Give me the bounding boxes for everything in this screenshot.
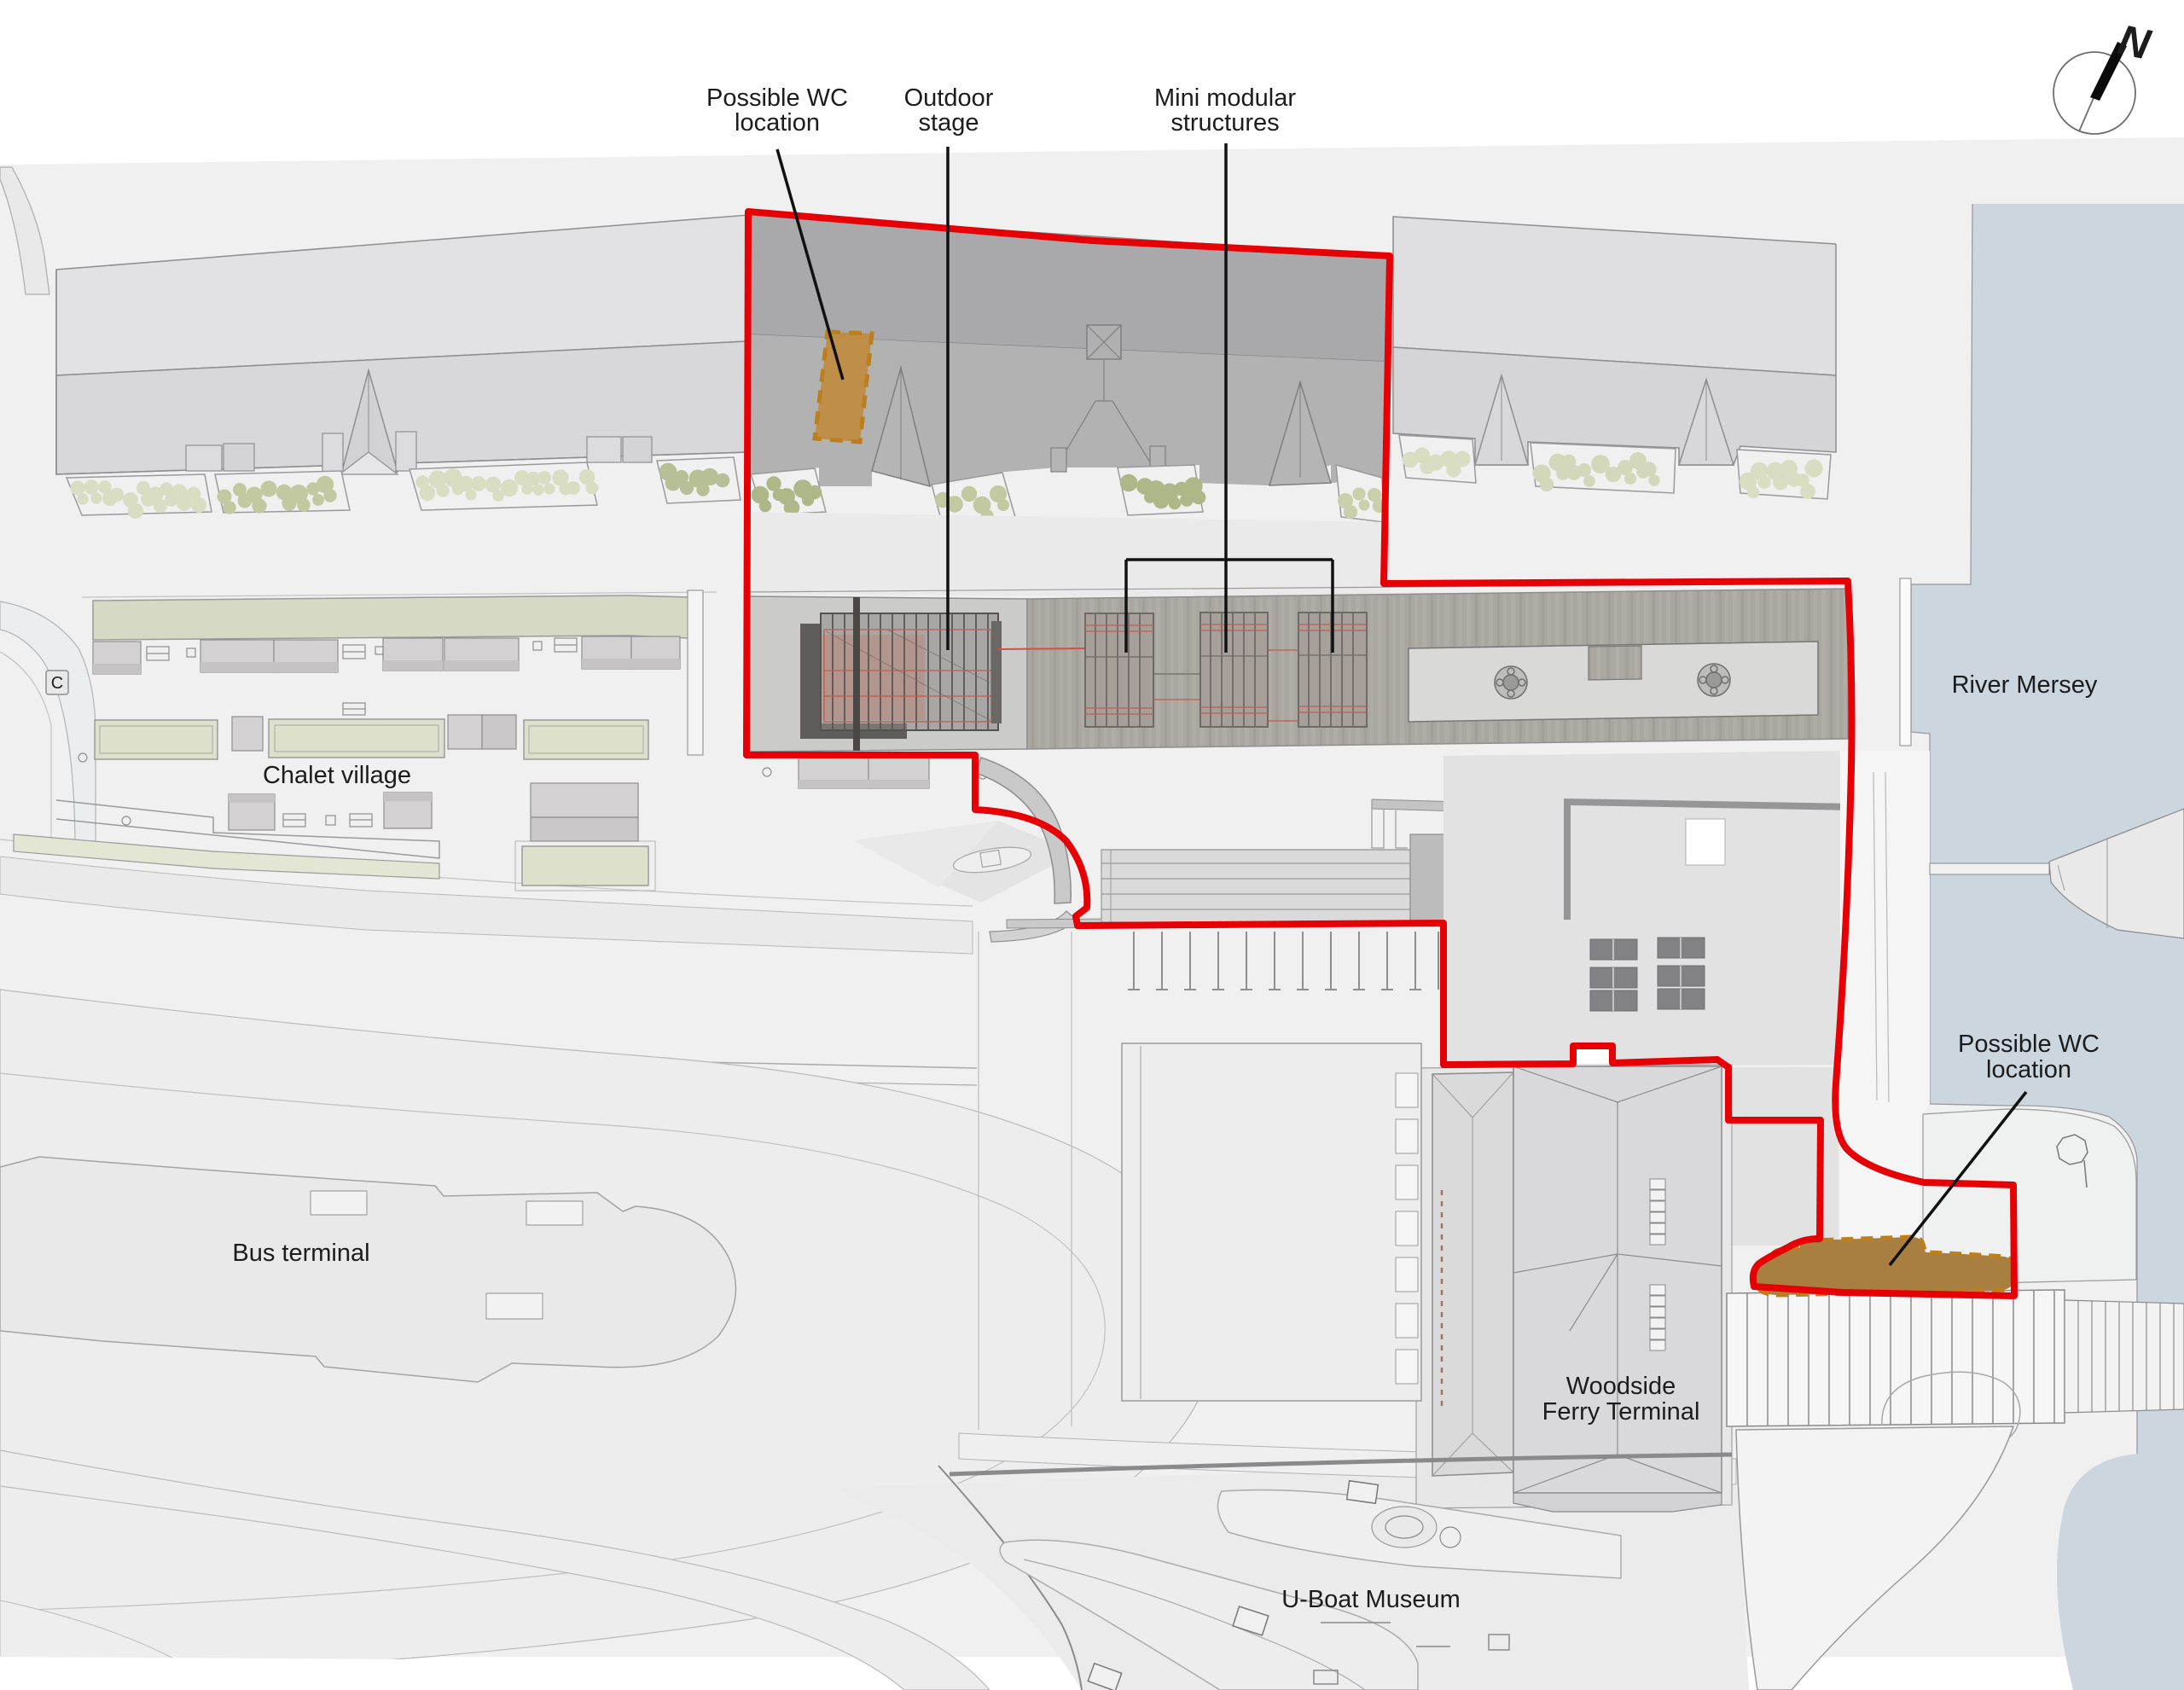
svg-text:structures: structures [1170, 109, 1279, 136]
svg-text:Possible WC: Possible WC [1958, 1031, 2100, 1058]
svg-text:location: location [1986, 1056, 2071, 1083]
svg-text:N: N [2114, 15, 2155, 68]
svg-text:Chalet village: Chalet village [263, 762, 411, 789]
svg-text:Bus terminal: Bus terminal [232, 1240, 369, 1267]
svg-text:U-Boat Museum: U-Boat Museum [1281, 1586, 1461, 1613]
svg-text:Woodside: Woodside [1566, 1373, 1676, 1400]
svg-text:location: location [735, 109, 820, 136]
svg-text:C: C [51, 674, 63, 693]
svg-text:Ferry Terminal: Ferry Terminal [1542, 1398, 1700, 1426]
svg-text:Possible WC: Possible WC [706, 84, 848, 112]
svg-text:stage: stage [919, 109, 979, 136]
svg-text:Mini modular: Mini modular [1154, 84, 1296, 112]
svg-text:River Mersey: River Mersey [1952, 671, 2098, 699]
svg-text:Outdoor: Outdoor [904, 84, 994, 112]
